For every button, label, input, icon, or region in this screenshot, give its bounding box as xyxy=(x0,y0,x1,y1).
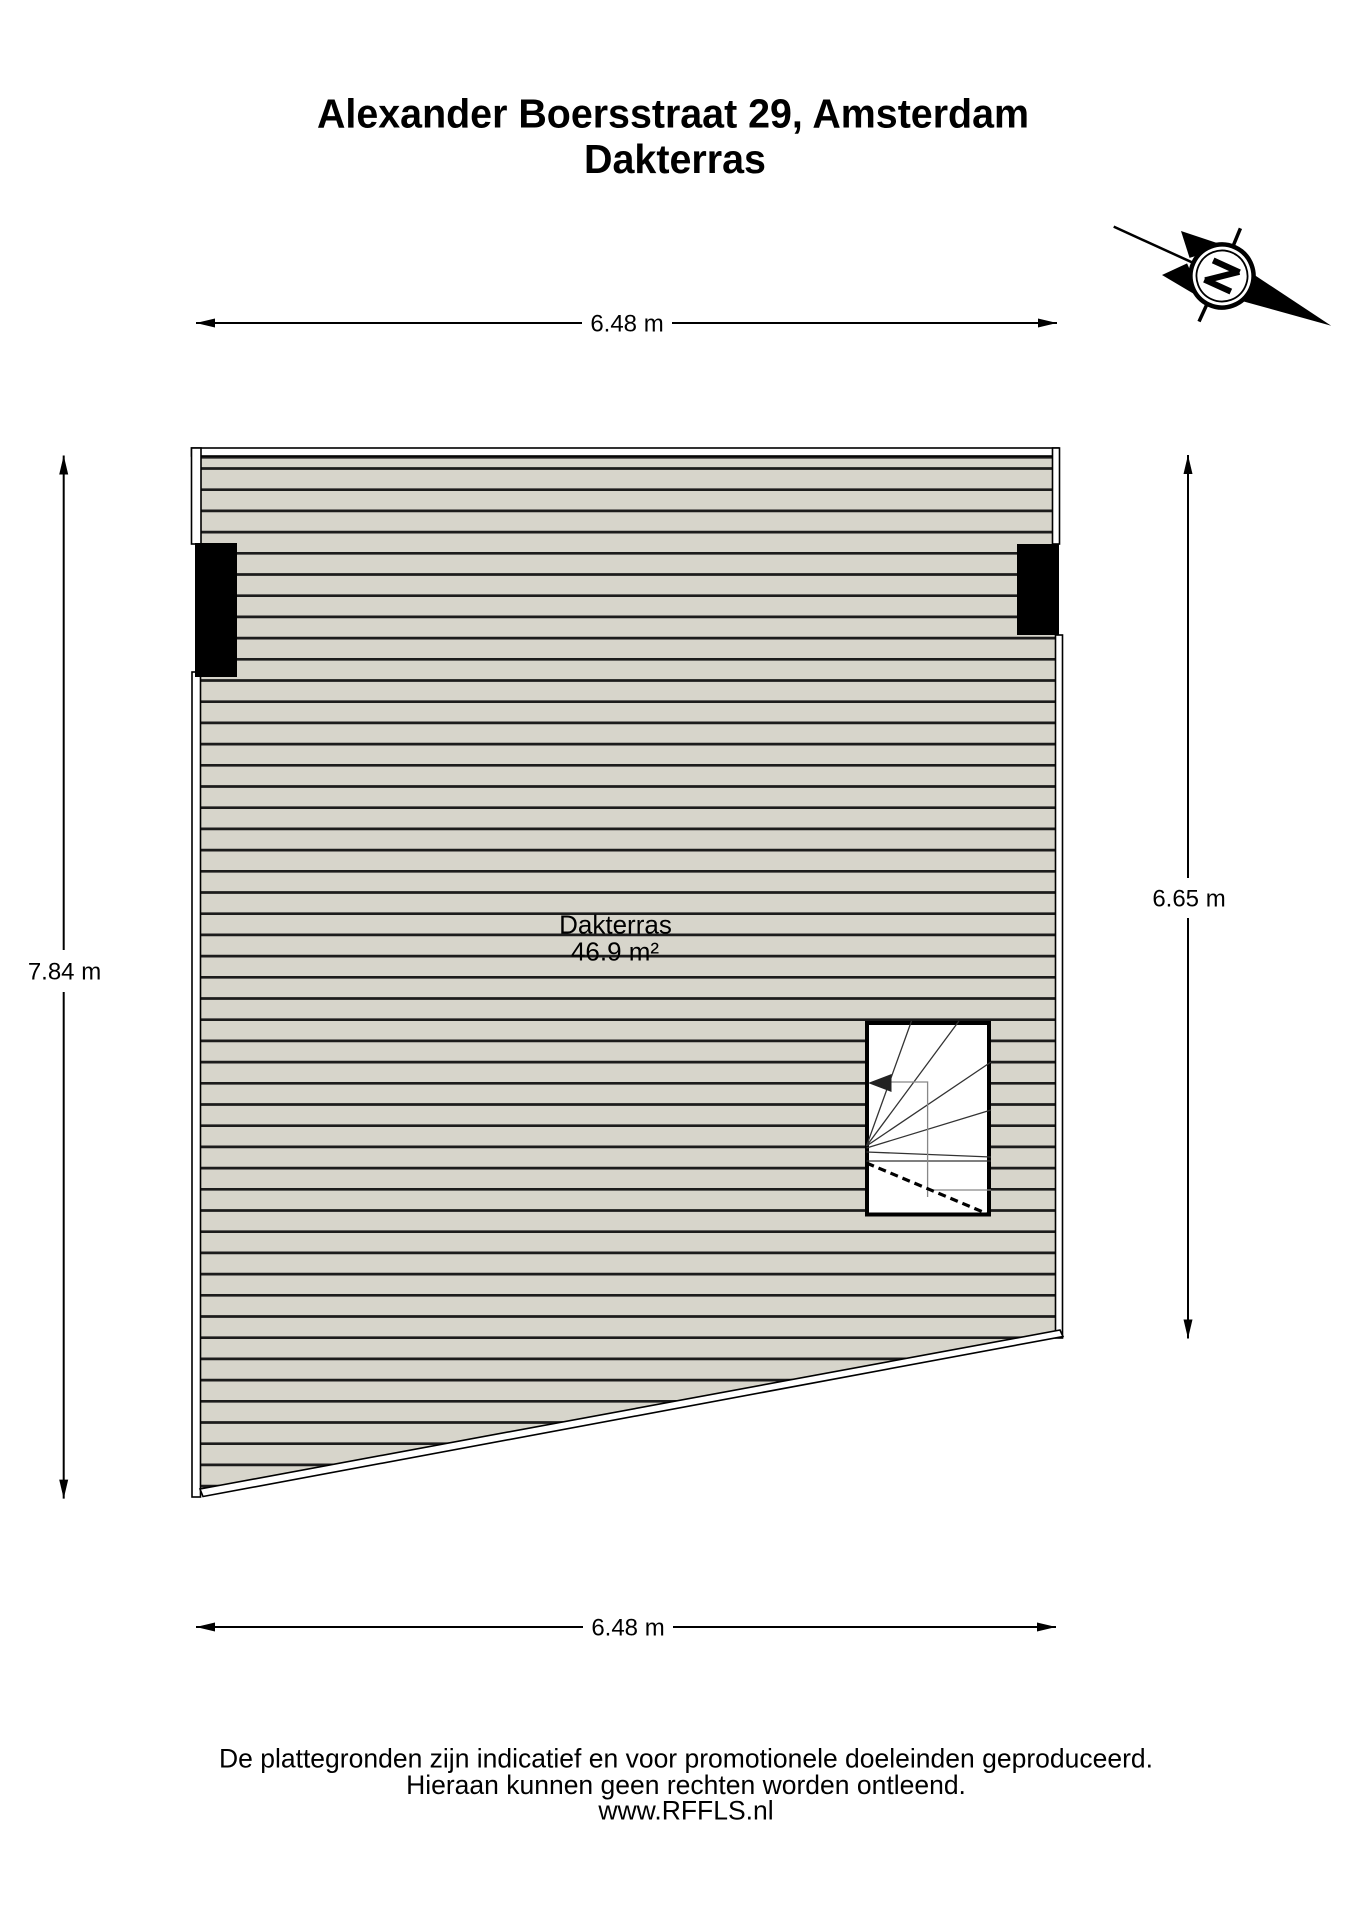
svg-text:Dakterras: Dakterras xyxy=(584,136,766,182)
svg-text:Dakterras: Dakterras xyxy=(559,910,672,940)
svg-text:De plattegronden zijn indicati: De plattegronden zijn indicatief en voor… xyxy=(219,1743,1153,1773)
svg-text:www.RFFLS.nl: www.RFFLS.nl xyxy=(597,1796,773,1826)
svg-text:6.48 m: 6.48 m xyxy=(590,311,663,338)
svg-text:6.65 m: 6.65 m xyxy=(1152,886,1225,913)
svg-text:7.84 m: 7.84 m xyxy=(28,959,101,986)
svg-text:6.48 m: 6.48 m xyxy=(591,1615,664,1642)
svg-text:Alexander Boersstraat 29, Amst: Alexander Boersstraat 29, Amsterdam xyxy=(317,90,1029,136)
svg-text:46.9 m²: 46.9 m² xyxy=(571,937,659,967)
